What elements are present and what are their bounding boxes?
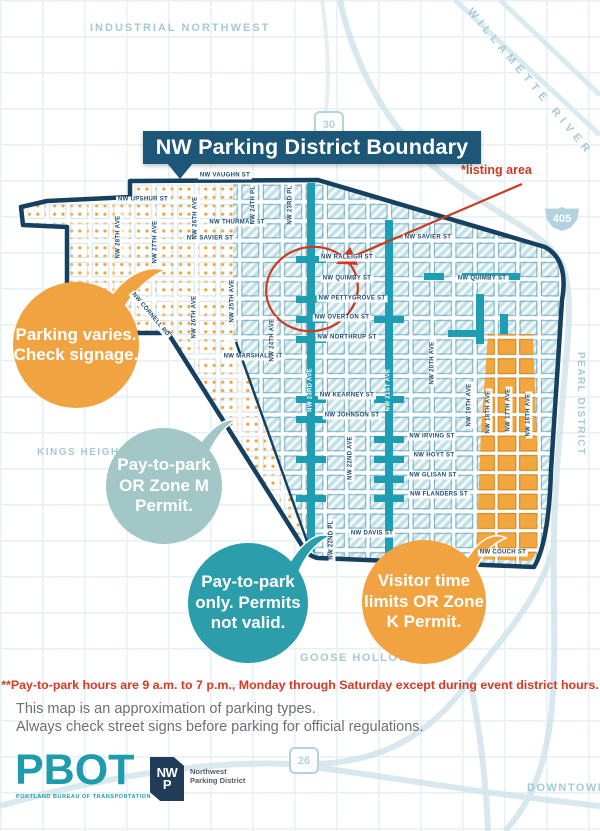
nwp-name: Northwest Parking District <box>190 767 245 785</box>
street-label-nw-22nd-ave: NW 22ND AVE <box>348 434 355 482</box>
street-label-nw-flanders-st: NW FLANDERS ST <box>408 492 470 499</box>
callout-text-line: Permit. <box>135 496 193 517</box>
highway-26-shield: 26 <box>289 747 319 774</box>
pbot-logo: PBOT <box>15 749 134 791</box>
street-label-nw-upshur-st: NW UPSHUR ST <box>116 197 170 204</box>
street-label-nw-pettygrove-st: NW PETTYGROVE ST <box>317 296 388 303</box>
street-label-nw-johnson-st: NW JOHNSON ST <box>323 413 382 420</box>
disclaimer-line-1: This map is an approximation of parking … <box>16 701 316 717</box>
callout-text-line: Pay-to-park <box>117 455 211 476</box>
street-label-nw-northrup-st: NW NORTHRUP ST <box>315 335 378 342</box>
street-label-nw-thurman-st: NW THURMAN ST <box>207 220 266 227</box>
region-label-downtown: DOWNTOWN <box>527 782 600 794</box>
street-label-nw-davis-st: NW DAVIS ST <box>349 531 395 538</box>
street-label-nw-glisan-st: NW GLISAN ST <box>407 473 458 480</box>
title-banner: NW Parking District Boundary <box>143 131 481 164</box>
street-label-nw-27th-ave: NW 27TH AVE <box>153 219 160 266</box>
street-label-nw-20th-ave: NW 20TH AVE <box>430 340 437 387</box>
street-label-nw-24th-ave: NW 24TH AVE <box>270 317 277 364</box>
callout-text-line: OR Zone M <box>119 476 209 497</box>
street-label-nw-18th-ave: NW 18TH AVE <box>486 389 493 436</box>
street-label-nw-26th-ave: NW 26TH AVE <box>192 294 199 341</box>
region-label-industrial-northwest: INDUSTRIAL NORTHWEST <box>90 22 270 34</box>
street-label-nw-raleigh-st: NW RALEIGH ST <box>319 255 375 262</box>
disclaimer-line-2: Always check street signs before parking… <box>16 719 424 735</box>
nwp-logo: NW P <box>150 757 184 801</box>
callout-pay-only: Pay-to-parkonly. Permitsnot valid. <box>188 543 308 663</box>
callout-text-line: only. Permits <box>195 593 301 614</box>
street-label-nw-irving-st: NW IRVING ST <box>407 434 456 441</box>
street-label-nw-hoyt-st: NW HOYT ST <box>412 453 457 460</box>
page-title: NW Parking District Boundary <box>156 135 469 160</box>
street-label-nw-overton-st: NW OVERTON ST <box>313 315 371 322</box>
callout-parking-varies: Parking varies.Check signage. <box>13 282 139 408</box>
street-label-nw-22nd-pl: NW 22ND PL <box>329 518 336 561</box>
nwp-letters-bottom: P <box>163 779 171 791</box>
callout-text-line: Visitor time <box>378 571 470 592</box>
callout-text-line: limits OR Zone <box>364 592 484 613</box>
street-label-nw-17th-ave: NW 17TH AVE <box>506 387 513 434</box>
callout-text-line: Pay-to-park <box>201 572 295 593</box>
street-label-nw-couch-st: NW COUCH ST <box>478 550 528 557</box>
pbot-tagline: PORTLAND BUREAU OF TRANSPORTATION <box>16 794 151 800</box>
callout-text-line: Parking varies. <box>16 325 137 346</box>
street-label-nw-28th-ave: NW 28TH AVE <box>116 214 123 261</box>
callout-zone-k: Visitor timelimits OR ZoneK Permit. <box>362 540 486 664</box>
callout-zone-m: Pay-to-parkOR Zone MPermit. <box>106 428 222 544</box>
nwp-name-line2: Parking District <box>190 776 245 785</box>
street-label-nw-16th-ave: NW 16TH AVE <box>526 392 533 439</box>
street-label-nw-23rd-pl: NW 23RD PL <box>288 183 295 226</box>
listing-area-label: *listing area <box>461 163 532 177</box>
callout-text-line: not valid. <box>211 613 286 634</box>
callout-text-line: K Permit. <box>387 612 462 633</box>
street-label-nw-24th-pl: NW 24TH PL <box>251 184 258 227</box>
nwp-name-line1: Northwest <box>190 767 245 776</box>
street-label-nw-19th-ave: NW 19TH AVE <box>467 382 474 429</box>
street-label-nw-quimby-st: NW QUIMBY ST <box>321 276 374 283</box>
pay-hours-note: **Pay-to-park hours are 9 a.m. to 7 p.m.… <box>0 678 600 692</box>
street-label-nw-quimby-st: NW QUIMBY ST <box>456 276 509 283</box>
street-label-nw-25th-ave: NW 25TH AVE <box>230 278 237 325</box>
street-label-nw-23rd-ave: NW 23RD AVE <box>308 366 315 414</box>
region-label-pearl-district: PEARL DISTRICT <box>575 352 586 456</box>
street-label-nw-21st-ave: NW 21ST AVE <box>386 367 393 414</box>
street-label-nw-kearney-st: NW KEARNEY ST <box>318 393 376 400</box>
street-label-nw-26th-ave: NW 26TH AVE <box>193 195 200 242</box>
parking-district-map-infographic: NW Parking District Boundary *listing ar… <box>0 0 600 831</box>
callout-text-line: Check signage. <box>14 345 139 366</box>
street-label-nw-vaughn-st: NW VAUGHN ST <box>198 173 252 180</box>
street-label-nw-savier-st: NW SAVIER ST <box>403 235 454 242</box>
